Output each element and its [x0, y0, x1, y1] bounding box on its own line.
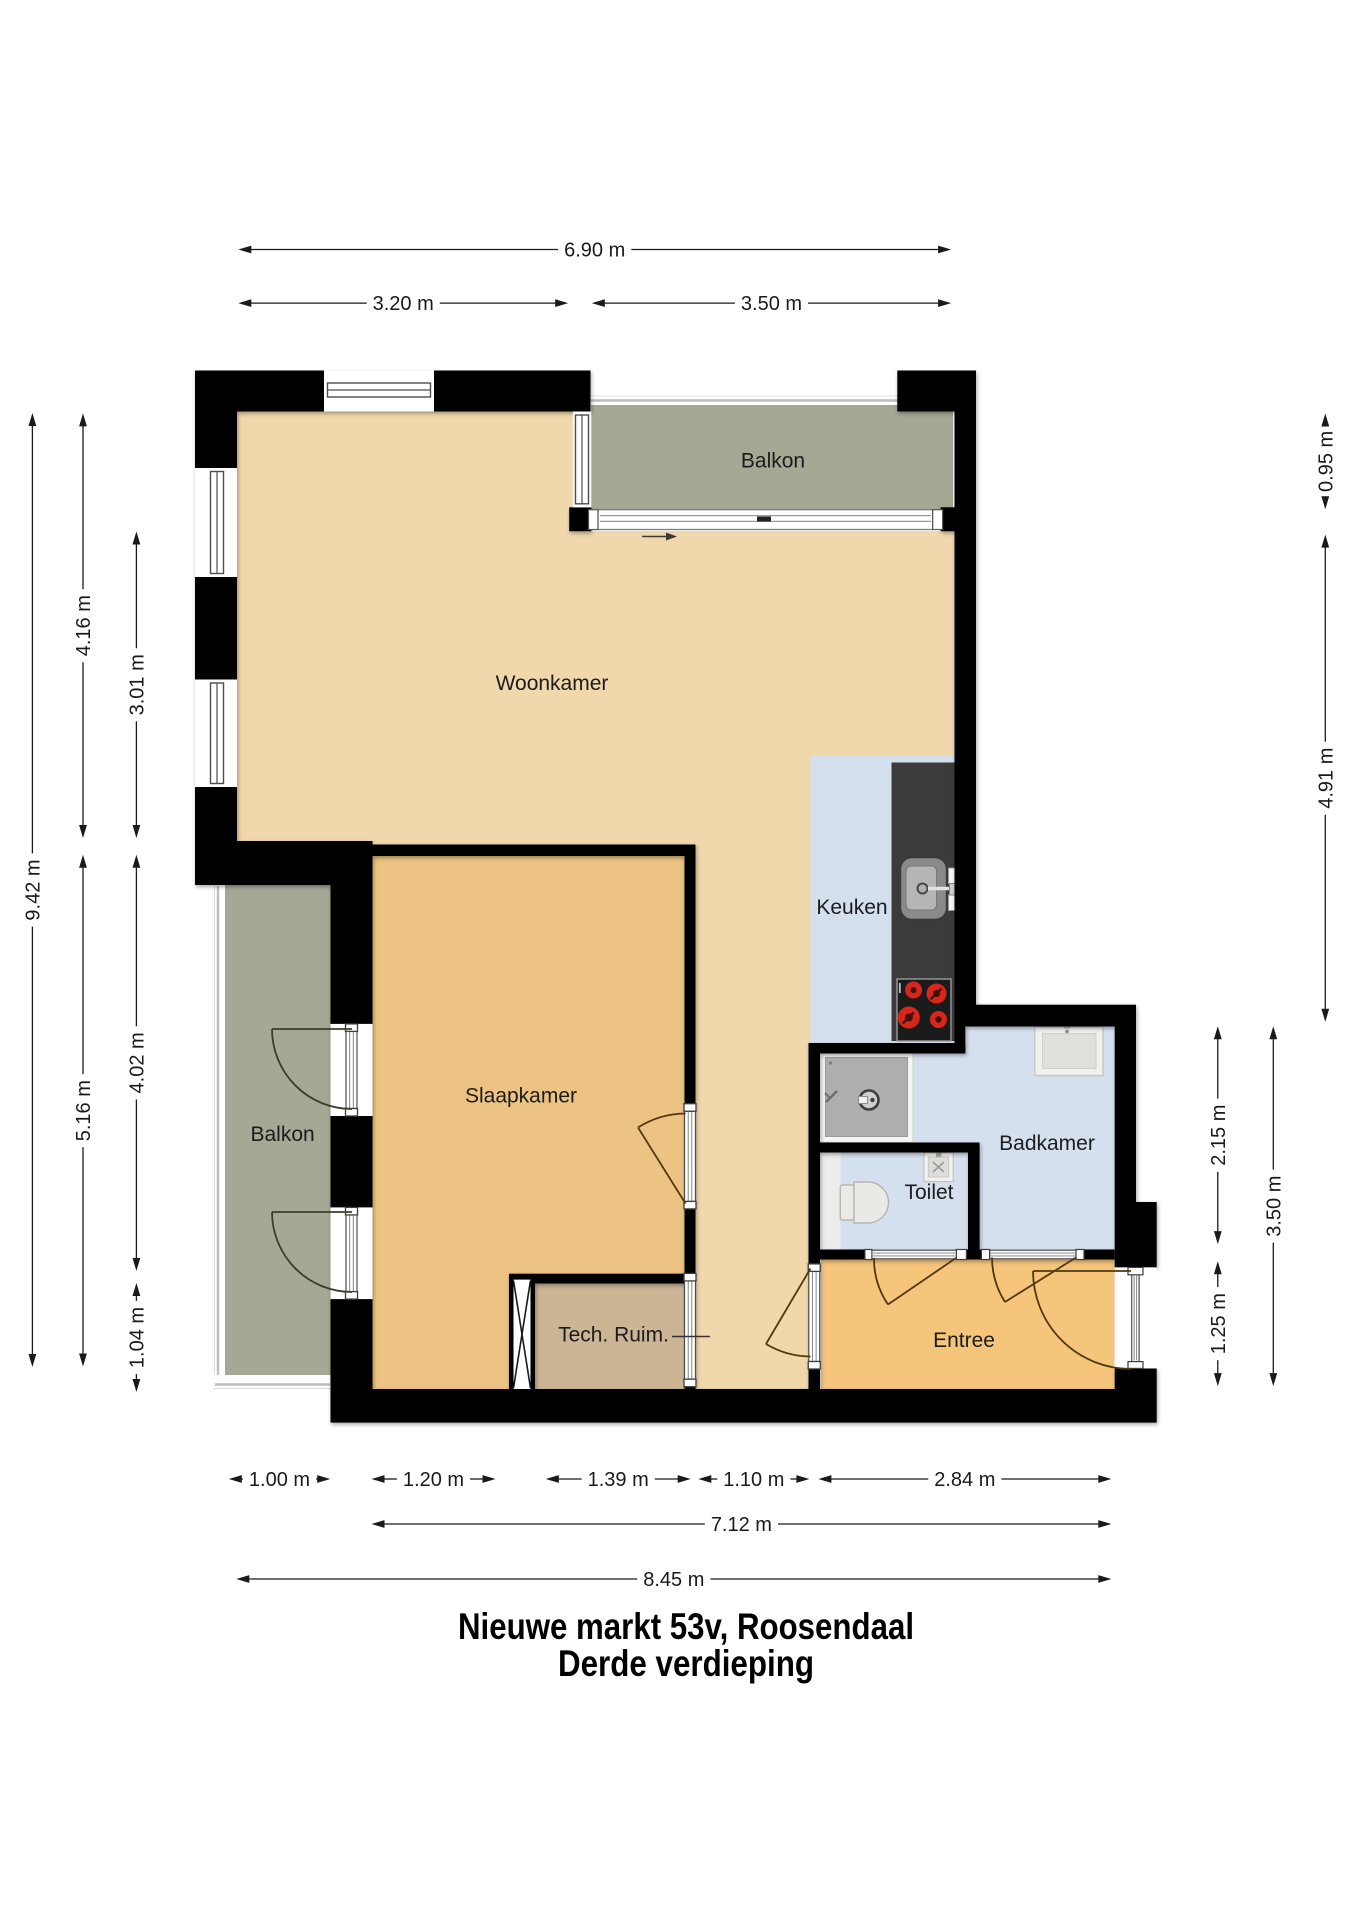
svg-text:1.04 m: 1.04 m: [126, 1307, 148, 1368]
svg-text:4.16 m: 4.16 m: [73, 595, 95, 656]
svg-text:1.20 m: 1.20 m: [403, 1469, 464, 1491]
svg-text:1.10 m: 1.10 m: [723, 1469, 784, 1491]
svg-text:2.84 m: 2.84 m: [934, 1469, 995, 1491]
svg-text:Derde verdieping: Derde verdieping: [558, 1643, 814, 1684]
svg-text:Nieuwe markt 53v, Roosendaal: Nieuwe markt 53v, Roosendaal: [458, 1606, 914, 1647]
svg-text:Balkon: Balkon: [741, 450, 805, 473]
svg-text:Toilet: Toilet: [904, 1181, 953, 1204]
svg-text:Tech. Ruim.: Tech. Ruim.: [558, 1324, 669, 1347]
svg-text:Keuken: Keuken: [816, 896, 887, 919]
svg-text:1.25 m: 1.25 m: [1208, 1293, 1230, 1354]
svg-text:6.90 m: 6.90 m: [564, 240, 625, 262]
svg-text:3.20 m: 3.20 m: [373, 293, 434, 315]
svg-text:3.50 m: 3.50 m: [741, 293, 802, 315]
svg-text:7.12 m: 7.12 m: [711, 1514, 772, 1536]
svg-text:3.01 m: 3.01 m: [126, 654, 148, 715]
svg-text:5.16 m: 5.16 m: [73, 1080, 95, 1141]
svg-text:0.95 m: 0.95 m: [1315, 431, 1337, 492]
svg-text:3.50 m: 3.50 m: [1263, 1176, 1285, 1237]
svg-text:Balkon: Balkon: [250, 1123, 314, 1146]
svg-text:9.42 m: 9.42 m: [22, 859, 44, 920]
svg-text:2.15 m: 2.15 m: [1208, 1105, 1230, 1166]
svg-text:1.00 m: 1.00 m: [249, 1469, 310, 1491]
svg-text:8.45 m: 8.45 m: [643, 1569, 704, 1591]
svg-text:Badkamer: Badkamer: [999, 1132, 1095, 1155]
svg-text:Entree: Entree: [933, 1329, 995, 1352]
svg-text:Slaapkamer: Slaapkamer: [465, 1085, 577, 1108]
svg-text:4.02 m: 4.02 m: [126, 1032, 148, 1093]
svg-text:Woonkamer: Woonkamer: [496, 672, 609, 695]
svg-text:4.91 m: 4.91 m: [1315, 748, 1337, 809]
svg-text:1.39 m: 1.39 m: [588, 1469, 649, 1491]
